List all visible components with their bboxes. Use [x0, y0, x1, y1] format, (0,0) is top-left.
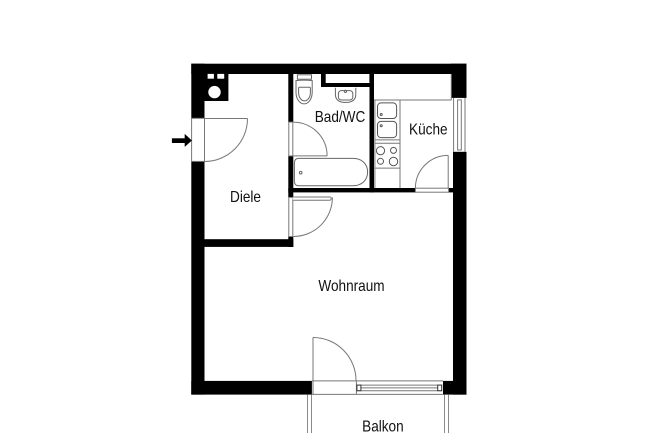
svg-text:Diele: Diele — [230, 189, 261, 206]
svg-text:Balkon: Balkon — [362, 419, 404, 433]
svg-text:Küche: Küche — [409, 122, 448, 139]
svg-text:Bad/WC: Bad/WC — [315, 109, 366, 126]
svg-text:Wohnraum: Wohnraum — [318, 278, 384, 295]
